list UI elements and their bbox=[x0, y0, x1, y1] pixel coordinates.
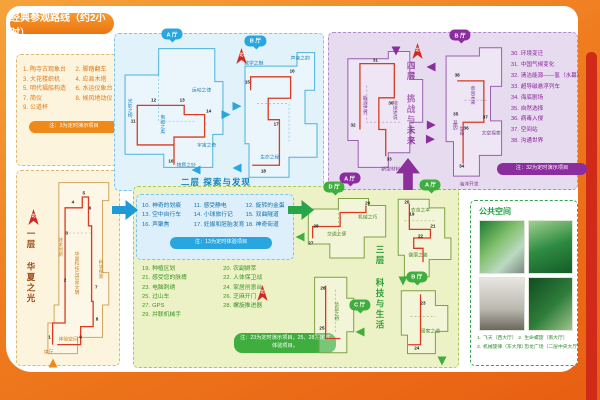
zone-label: 物质之妙 bbox=[177, 161, 196, 168]
map-building: 机械之巧交通之便272829D 厅 bbox=[304, 195, 390, 265]
exhibit-item: 18.神奇街道 bbox=[246, 221, 290, 230]
route-stop-number: 30 bbox=[388, 100, 393, 105]
building-outline-svg bbox=[341, 49, 427, 171]
exhibit-item: 6.水运仪象台 bbox=[75, 85, 115, 95]
route-stop-number: 4 bbox=[72, 200, 75, 205]
route-stop-number: 16 bbox=[290, 69, 295, 74]
map-building: 信息之桥2625C 厅 bbox=[310, 273, 356, 357]
route-stop-number: 28 bbox=[313, 223, 318, 228]
route-stop-number: 14 bbox=[206, 108, 211, 113]
public-space-panel: 公共空间 1.飞天（西大厅）2.生命螺旋（南大厅）3.机械旋律（东大厅）4.恐龙… bbox=[470, 200, 578, 366]
building-outline-svg bbox=[304, 195, 390, 265]
route-stop-number: 13 bbox=[180, 98, 185, 103]
exhibit-item: 38.沟通世界 bbox=[511, 136, 577, 147]
zone-label: 海洋开发 bbox=[459, 181, 478, 188]
route-stop-number: 20 bbox=[404, 199, 409, 204]
route-direction-arrow-icon bbox=[355, 327, 364, 336]
zone-label: 太空探索 bbox=[482, 130, 501, 137]
zone-label: 声音之韵 bbox=[291, 55, 310, 62]
route-stop-number: 5 bbox=[83, 191, 86, 196]
zone-label: 数学之魅 bbox=[244, 60, 263, 67]
route-stop-number: 26 bbox=[320, 286, 325, 291]
hall-label-bubble: B 厅 bbox=[245, 35, 266, 46]
floor2-note-pill: 注：13为定时体验项目 bbox=[170, 237, 272, 249]
hall-label-bubble: C 厅 bbox=[349, 299, 370, 310]
route-stop-number: 25 bbox=[319, 326, 324, 331]
zone-label: 电磁之奥 bbox=[158, 114, 165, 133]
exhibit-item: 1.飞天（西大厅） bbox=[477, 335, 518, 344]
route-stop-number: 29 bbox=[365, 201, 370, 206]
route-stop-number: 23 bbox=[420, 301, 425, 306]
route-direction-arrow-icon bbox=[48, 358, 57, 367]
escalator-photo bbox=[479, 220, 525, 274]
exhibit-item: 32.清洁能源——氢（水幕） bbox=[511, 71, 577, 82]
floor1-note-pill: 注：3为定时演示项目 bbox=[29, 121, 119, 133]
floor1-exhibit-list-panel: 1.陶寺古观象台2.脚踏翻车3.大花楼织机4.应县木塔5.明代福船构造6.水运仪… bbox=[16, 54, 120, 166]
dinosaur-skeleton-photo bbox=[479, 277, 525, 331]
hall-label-bubble: B 厅 bbox=[406, 271, 427, 282]
zone-label: 健康之路 bbox=[408, 252, 427, 259]
exhibit-item: 4.恐龙广场（二层中央大厅） bbox=[518, 344, 571, 353]
route-direction-arrow-icon bbox=[426, 135, 435, 144]
exhibit-item: 3.大花楼织机 bbox=[23, 76, 75, 86]
route-stop-number: 34 bbox=[459, 164, 464, 169]
route-stop-number: 2 bbox=[64, 277, 67, 282]
route-stop-number: 24 bbox=[414, 345, 419, 350]
exhibit-item: 10.神奇的划痕 bbox=[142, 202, 194, 211]
zone-label: 光影之绚 bbox=[126, 98, 133, 117]
route-stop-number: 33 bbox=[387, 156, 392, 161]
hall-label-bubble: A 厅 bbox=[161, 29, 182, 40]
route-stop-number: 38 bbox=[455, 73, 460, 78]
floor2-exhibit-list-panel: 10.神奇的划痕11.感受静电12.旋转的金蛋13.空中自行车14.小球旅行记1… bbox=[136, 194, 294, 260]
building-outline-svg bbox=[435, 45, 509, 183]
zone-label: 运动之律 bbox=[192, 86, 211, 93]
map-building: 能源世界地球述说新型材料31303233A 厅 bbox=[341, 49, 427, 171]
hall-label-bubble: A 厅 bbox=[420, 179, 441, 190]
exhibit-item: 28.螺旋推进器 bbox=[223, 302, 298, 311]
exhibit-item: 2.脚踏翻车 bbox=[75, 66, 115, 76]
route-stop-number: 10 bbox=[168, 158, 173, 163]
exhibit-item: 23.电脑刺绣 bbox=[142, 284, 223, 293]
zone-label: 宇宙之奇 bbox=[197, 141, 216, 148]
building-outline-svg bbox=[392, 287, 454, 361]
exhibit-item: 1.陶寺古观象台 bbox=[23, 66, 75, 76]
route-stop-number: 15 bbox=[245, 80, 250, 85]
map-building: 走向未来基因生命太空探索海洋开发3435363738B 厅 bbox=[435, 45, 509, 183]
exhibit-item: 12.旋转的金蛋 bbox=[246, 202, 290, 211]
floor4-panel: 四层 挑战与未来 30.环境变迁31.中国气候变化32.清洁能源——氢（水幕）3… bbox=[328, 32, 578, 190]
route-direction-arrow-icon bbox=[427, 63, 436, 72]
route-stop-number: 6 bbox=[89, 205, 92, 210]
floor3-exhibit-list-panel: 19.种植区划20.农副撷萃21.感受您的脉搏22.人体保卫战23.电脑刺绣24… bbox=[142, 265, 298, 321]
map-building: 数学之魅声音之韵生命之秘15161718B 厅 bbox=[241, 50, 321, 184]
route-stop-number: 37 bbox=[483, 114, 488, 119]
exhibit-item: 15.双曲隧道 bbox=[246, 211, 290, 220]
exhibit-item: 25.过山车 bbox=[142, 293, 223, 302]
zone-label: 序厅 bbox=[44, 348, 54, 355]
spiral-stairs-photo bbox=[528, 220, 574, 274]
public-space-title: 公共空间 bbox=[479, 206, 571, 217]
zone-label: 体验空间 bbox=[59, 336, 78, 343]
page-title: 经典参观路线（约2小时） bbox=[10, 13, 114, 34]
floor1-label: 一层 华夏之光 bbox=[25, 229, 37, 304]
exhibit-item: 20.农副撷萃 bbox=[223, 265, 298, 274]
zone-label: 信息之桥 bbox=[332, 301, 339, 320]
route-stop-number: 31 bbox=[373, 57, 378, 62]
zone-label: 能源世界 bbox=[361, 96, 368, 115]
zone-label: 居家之道 bbox=[421, 328, 440, 335]
floor2-map-panel: 二层 探索与发现 北 光影之绚电磁之奥运动之律宇宙之奇物质之妙101112131… bbox=[114, 33, 324, 191]
exhibit-item: 22.人体保卫战 bbox=[223, 274, 298, 283]
zone-label: 新型材料 bbox=[381, 165, 400, 172]
exhibit-item: 13.空中自行车 bbox=[142, 211, 194, 220]
public-space-photos bbox=[479, 220, 573, 331]
route-stop-number: 36 bbox=[464, 125, 469, 130]
zone-label: 交通之便 bbox=[327, 230, 346, 237]
route-stop-number: 7 bbox=[95, 285, 98, 290]
zone-label: 机械之巧 bbox=[358, 214, 377, 221]
zone-label: 技术创新 bbox=[56, 238, 63, 257]
route-stop-number: 21 bbox=[430, 223, 435, 228]
exhibit-item: 31.中国气候变化 bbox=[511, 60, 577, 71]
frame-red-stripe bbox=[586, 52, 597, 400]
route-stop-number: 3 bbox=[65, 231, 68, 236]
public-space-list: 1.飞天（西大厅）2.生命螺旋（南大厅）3.机械旋律（东大厅）4.恐龙广场（二层… bbox=[477, 335, 571, 352]
route-stop-number: 9 bbox=[79, 335, 82, 340]
floor4-note-pill: 注：32为定时演示项目 bbox=[497, 163, 587, 175]
exhibit-item: 8.候风地动仪 bbox=[75, 95, 115, 105]
floor4-exhibit-list-panel: 30.环境变迁31.中国气候变化32.清洁能源——氢（水幕）33.超导磁悬浮列车… bbox=[511, 49, 577, 147]
route-stop-number: 27 bbox=[308, 240, 313, 245]
exhibit-item: 36.病毒入侵 bbox=[511, 114, 577, 125]
route-direction-arrow-icon bbox=[233, 163, 242, 172]
zone-label: 华夏科技与世界文明 bbox=[73, 251, 80, 294]
map-building: 衣食之本健康之路20192122A 厅 bbox=[392, 195, 454, 281]
poster-stage: 经典参观路线（约2小时） 1.陶寺古观象台2.脚踏翻车3.大花楼织机4.应县木塔… bbox=[0, 0, 600, 400]
floor2-exhibit-list: 10.神奇的划痕11.感受静电12.旋转的金蛋13.空中自行车14.小球旅行记1… bbox=[142, 202, 290, 230]
exhibit-item: 34.海底剧场 bbox=[511, 93, 577, 104]
hall-label-bubble: A 厅 bbox=[339, 173, 360, 184]
route-direction-arrow-icon bbox=[222, 110, 231, 119]
exhibit-item: 37.空间站 bbox=[511, 125, 577, 136]
route-stop-number: 18 bbox=[261, 168, 266, 173]
exhibit-item: 16.声聚焦 bbox=[142, 221, 194, 230]
exhibit-item: 3.机械旋律（东大厅） bbox=[477, 344, 518, 353]
exhibit-item: 5.明代福船构造 bbox=[23, 85, 75, 95]
green-wall-photo bbox=[528, 277, 574, 331]
map-building: 光影之绚电磁之奥运动之律宇宙之奇物质之妙1011121314A 厅 bbox=[123, 42, 225, 174]
floor3-exhibit-list: 19.种植区划20.农副撷萃21.感受您的脉搏22.人体保卫战23.电脑刺绣24… bbox=[142, 265, 298, 321]
exhibit-item: 29.并联机械手 bbox=[142, 311, 223, 320]
route-stop-number: 17 bbox=[274, 121, 279, 126]
route-stop-number: 8 bbox=[96, 317, 99, 322]
zone-label: 科学探索 bbox=[97, 259, 104, 278]
exhibit-item: 2.生命螺旋（南大厅） bbox=[518, 335, 571, 344]
exhibit-item: 27.GPS bbox=[142, 302, 223, 311]
route-direction-arrow-icon bbox=[437, 357, 446, 366]
route-stop-number: 11 bbox=[131, 119, 136, 124]
exhibit-item: 7.简仪 bbox=[23, 95, 75, 105]
floor1-exhibit-list: 1.陶寺古观象台2.脚踏翻车3.大花楼织机4.应县木塔5.明代福船构造6.水运仪… bbox=[23, 66, 115, 114]
route-direction-arrow-icon bbox=[295, 233, 304, 242]
exhibit-item: 21.感受您的脉搏 bbox=[142, 274, 223, 283]
exhibit-item: 11.感受静电 bbox=[194, 202, 246, 211]
floor1-map-panel: 一层 华夏之光 北 技术创新华夏科技与世界文明科学探索体验空间序厅1234567… bbox=[16, 170, 120, 366]
exhibit-item: 35.自然选择 bbox=[511, 104, 577, 115]
exhibit-item: 19.种植区划 bbox=[142, 265, 223, 274]
route-stop-number: 35 bbox=[453, 112, 458, 117]
exhibit-item: 9.公道杯 bbox=[23, 104, 75, 114]
hall-label-bubble: B 厅 bbox=[450, 30, 471, 41]
map-building: 技术创新华夏科技与世界文明科学探索体验空间序厅123456789 bbox=[37, 179, 115, 359]
exhibit-item: 17.妊娠和胚胎发育 bbox=[194, 221, 246, 230]
route-stop-number: 19 bbox=[409, 211, 414, 216]
zone-label: 生命之秘 bbox=[260, 154, 279, 161]
exhibit-item: 14.小球旅行记 bbox=[194, 211, 246, 220]
exhibit-item: 33.超导磁悬浮列车 bbox=[511, 82, 577, 93]
exhibit-item: 30.环境变迁 bbox=[511, 49, 577, 60]
route-stop-number: 22 bbox=[418, 234, 423, 239]
route-stop-number: 1 bbox=[48, 335, 51, 340]
exhibit-item: 4.应县木塔 bbox=[75, 76, 115, 86]
route-stop-number: 32 bbox=[350, 122, 355, 127]
map-building: 居家之道2324B 厅 bbox=[392, 287, 454, 361]
zone-label: 走向未来 bbox=[469, 85, 476, 104]
route-stop-number: 12 bbox=[151, 98, 156, 103]
floor4-exhibit-list: 30.环境变迁31.中国气候变化32.清洁能源——氢（水幕）33.超导磁悬浮列车… bbox=[511, 49, 577, 147]
building-outline-svg bbox=[241, 50, 321, 184]
